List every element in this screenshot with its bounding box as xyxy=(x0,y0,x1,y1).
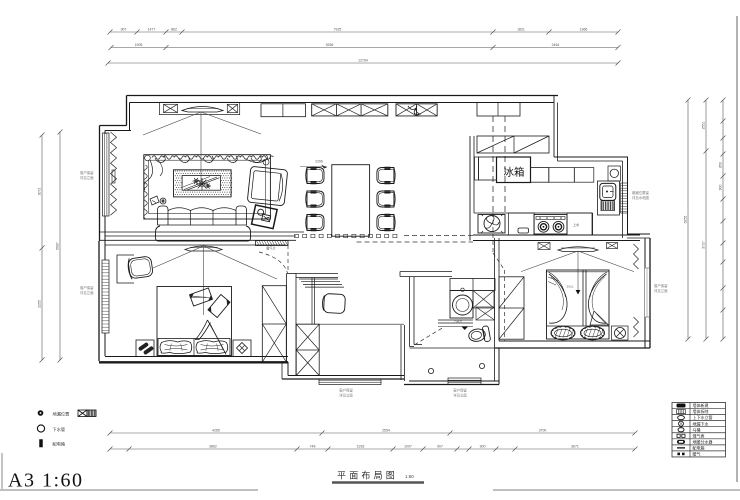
svg-text:1366: 1366 xyxy=(580,28,588,32)
svg-text:地漏位置: 地漏位置 xyxy=(53,411,70,418)
svg-text:2296: 2296 xyxy=(315,160,323,164)
svg-text:3072: 3072 xyxy=(38,188,42,196)
svg-text:上下水立管: 上下水立管 xyxy=(693,414,713,420)
svg-text:748: 748 xyxy=(310,445,316,449)
svg-text:3671: 3671 xyxy=(571,445,579,449)
svg-text:1933: 1933 xyxy=(357,445,365,449)
svg-text:墙体新建: 墙体新建 xyxy=(693,402,709,408)
svg-text:850: 850 xyxy=(719,162,723,168)
svg-text:地暖分水器: 地暖分水器 xyxy=(693,438,713,444)
svg-text:暖气片: 暖气片 xyxy=(266,246,276,251)
svg-text:详见立面: 详见立面 xyxy=(453,393,467,398)
svg-text:5687: 5687 xyxy=(56,242,60,250)
svg-text:冰箱: 冰箱 xyxy=(504,166,525,179)
svg-text:详见立面: 详见立面 xyxy=(654,288,668,293)
svg-text:907: 907 xyxy=(121,28,127,32)
svg-text:暖气: 暖气 xyxy=(693,451,701,457)
svg-text:窗户保留: 窗户保留 xyxy=(80,170,94,175)
svg-text:2464: 2464 xyxy=(552,43,560,47)
svg-text:4265: 4265 xyxy=(212,429,220,433)
svg-text:配电箱: 配电箱 xyxy=(693,444,705,450)
svg-text:上水: 上水 xyxy=(573,222,580,227)
svg-text:2255: 2255 xyxy=(38,300,42,308)
svg-text:7925: 7925 xyxy=(334,28,342,32)
svg-text:门槛石: 门槛石 xyxy=(454,320,463,324)
svg-text:1821: 1821 xyxy=(517,28,525,32)
svg-text:窗户保留: 窗户保留 xyxy=(654,283,668,288)
svg-text:900: 900 xyxy=(480,445,486,449)
svg-text:907: 907 xyxy=(437,445,443,449)
svg-text:2554: 2554 xyxy=(382,429,390,433)
svg-text:详见水电图: 详见水电图 xyxy=(632,195,650,200)
svg-text:3700: 3700 xyxy=(539,429,547,433)
svg-text:马桶: 马桶 xyxy=(693,426,701,432)
svg-text:地漏下水: 地漏下水 xyxy=(693,420,709,426)
svg-text:1007: 1007 xyxy=(404,445,412,449)
svg-text:2551: 2551 xyxy=(702,122,706,130)
svg-text:862: 862 xyxy=(171,28,177,32)
svg-text:2X2L: 2X2L xyxy=(566,285,573,289)
svg-text:9265: 9265 xyxy=(326,43,334,47)
svg-text:详见立面: 详见立面 xyxy=(339,393,353,398)
svg-text:详见立面: 详见立面 xyxy=(80,290,94,295)
svg-text:平面布局图: 平面布局图 xyxy=(337,470,398,481)
svg-text:1:60: 1:60 xyxy=(405,474,414,479)
svg-text:900: 900 xyxy=(719,185,723,191)
svg-text:3727: 3727 xyxy=(702,241,706,249)
svg-text:窗户保留: 窗户保留 xyxy=(339,388,353,393)
svg-text:煤气表: 煤气表 xyxy=(693,432,705,438)
svg-text:A3 1:60: A3 1:60 xyxy=(8,470,84,492)
svg-text:烟道位置留: 烟道位置留 xyxy=(632,190,650,195)
svg-text:12764: 12764 xyxy=(358,59,368,63)
svg-text:窗户保留: 窗户保留 xyxy=(453,388,467,393)
svg-text:1477: 1477 xyxy=(148,28,156,32)
svg-text:墙体拆除: 墙体拆除 xyxy=(693,408,709,414)
svg-text:1905: 1905 xyxy=(135,43,143,47)
svg-text:6255: 6255 xyxy=(684,216,688,224)
svg-text:详见立面: 详见立面 xyxy=(80,175,94,180)
svg-text:配电箱: 配电箱 xyxy=(53,441,66,448)
svg-text:窗户保留: 窗户保留 xyxy=(80,285,94,290)
svg-text:3862: 3862 xyxy=(209,445,217,449)
svg-text:下水管: 下水管 xyxy=(53,426,66,433)
